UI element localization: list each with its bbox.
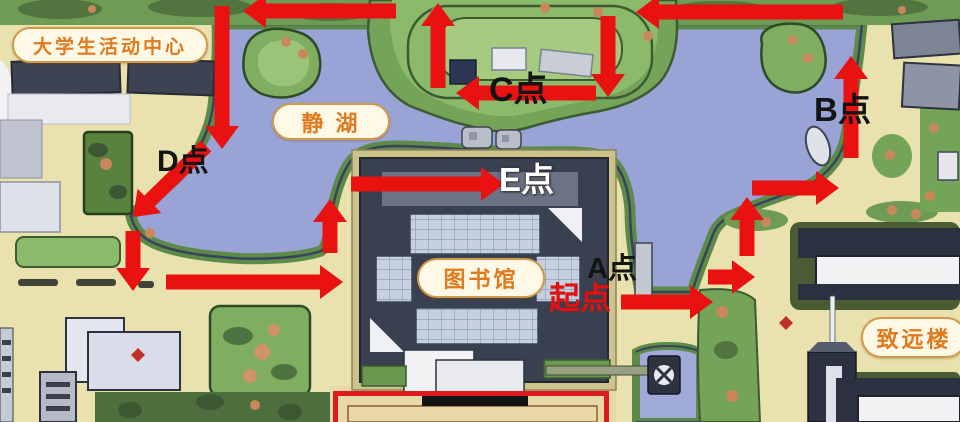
badge-zhiyuan-building: 致远楼 xyxy=(861,317,960,358)
campus-map-screenshot: 大学生活动中心静 湖图书馆致远楼 起点A点B点C点D点E点 xyxy=(0,0,960,422)
highlight-rectangle xyxy=(333,391,609,422)
badge-activity-center: 大学生活动中心 xyxy=(12,27,208,63)
route-point-label-point-b: B点 xyxy=(814,93,871,126)
badge-library: 图书馆 xyxy=(417,258,545,298)
route-point-label-point-e: E点 xyxy=(499,163,554,196)
badge-jing-lake: 静 湖 xyxy=(272,103,390,140)
route-point-label-point-c: C点 xyxy=(489,73,548,107)
route-point-label-point-d: D点 xyxy=(157,147,209,177)
annotations-overlay: 大学生活动中心静 湖图书馆致远楼 起点A点B点C点D点E点 xyxy=(0,0,960,422)
route-point-label-start: 起点 xyxy=(549,283,611,314)
route-point-label-point-a: A点 xyxy=(587,255,637,284)
